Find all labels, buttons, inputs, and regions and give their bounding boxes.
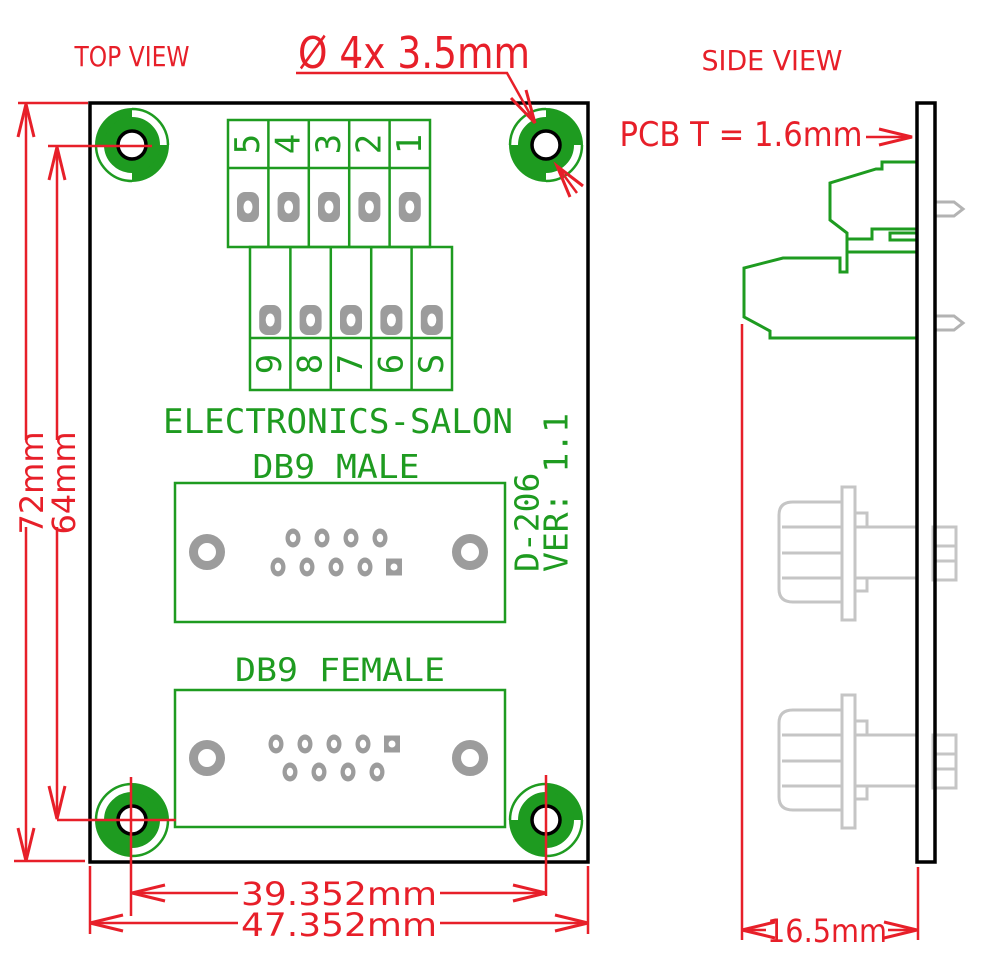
terminal-pin [935,202,963,216]
pin-pad [286,529,301,548]
terminal-pad [300,305,322,335]
terminal-label: 1 [390,134,430,154]
top-view-title: TOP VIEW [74,40,190,73]
terminal-label: S [412,354,452,374]
terminal-block-lip [890,233,917,240]
terminal-block-side [744,162,917,338]
terminal-pad [318,192,340,222]
pin-pad [298,735,313,754]
technical-drawing: 5 4 3 2 1 9 8 7 6 S ELECTRONICS-SALON DB… [0,0,1000,973]
dimension-text-side-depth: 16.5mm [767,912,887,950]
dimension-text-hole-spacing-v: 64mm [45,431,83,534]
hole-diameter-note: Ø 4x 3.5mm [298,28,530,79]
pin-pad [370,763,385,782]
terminal-label: 6 [371,354,411,374]
terminal-block-side-upper [830,162,917,239]
terminal-label: 8 [291,354,331,374]
top-view: 5 4 3 2 1 9 8 7 6 S ELECTRONICS-SALON DB… [90,103,588,862]
terminal-label: 7 [331,354,371,374]
terminal-label: 3 [309,134,349,154]
pin-pad [271,558,286,577]
terminal-pad [399,192,421,222]
pin-pad [344,529,359,548]
pcb-datasheet-drawing: 5 4 3 2 1 9 8 7 6 S ELECTRONICS-SALON DB… [0,0,1000,973]
terminal-label: 5 [228,134,268,154]
pin-pad [283,763,298,782]
pin-pad [341,763,356,782]
pin-pad [373,529,388,548]
pin-pad [327,735,342,754]
terminal-pad [237,192,259,222]
mounting-hole-top-right [509,108,583,182]
terminal-block-side-lower [744,252,917,338]
terminal-pad [380,305,402,335]
pin-pad-square [386,559,402,576]
terminal-pin [935,316,963,330]
pin-pad [329,558,344,577]
terminal-label: 2 [349,134,389,154]
version-text: VER: 1.1 [537,413,576,572]
pin-pad [356,735,371,754]
terminal-label: 9 [250,354,290,374]
db9-female-label: DB9 FEMALE [235,651,445,689]
pin-pad [358,558,373,577]
terminal-pad [358,192,380,222]
pin-pad [312,763,327,782]
pin-pad [269,735,284,754]
pin-pad [300,558,315,577]
side-view [744,103,963,862]
terminal-label: 4 [269,134,309,154]
brand-text: ELECTRONICS-SALON [163,402,513,442]
terminal-pad [340,305,362,335]
terminal-pad [259,305,281,335]
terminal-pad [421,305,443,335]
db9-male-label: DB9 MALE [253,447,420,486]
terminal-pad [278,192,300,222]
pcb-thickness-note: PCB T = 1.6mm [620,115,863,155]
pin-pad [315,529,330,548]
pin-pad-square [384,736,400,753]
side-view-title: SIDE VIEW [702,44,843,77]
dimension-text-board-width: 47.352mm [241,906,437,944]
